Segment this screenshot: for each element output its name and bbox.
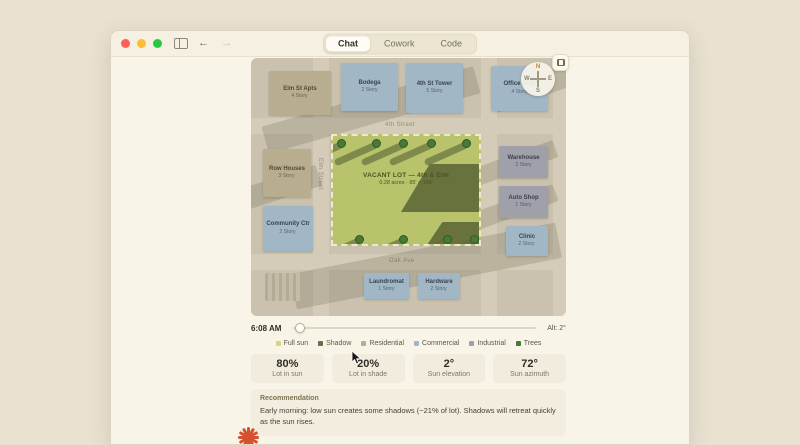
building-floors: 2 Story bbox=[431, 287, 447, 293]
sun-study-map[interactable]: 4th Street Elm Street Oak Ave Elm St Apt… bbox=[251, 58, 566, 316]
legend-item-shadow: Shadow bbox=[318, 340, 351, 347]
street-label-4th: 4th Street bbox=[385, 122, 415, 128]
tree-icon bbox=[462, 139, 471, 148]
building-floors: 2 Story bbox=[280, 229, 296, 235]
legend-label: Shadow bbox=[326, 340, 351, 347]
building-clinic: Clinic 2 Story bbox=[506, 226, 548, 256]
legend-swatch bbox=[469, 341, 474, 346]
building-hardware: Hardware 2 Story bbox=[418, 273, 460, 299]
recommendation-heading: Recommendation bbox=[260, 395, 557, 402]
building-name: Bodega bbox=[358, 80, 380, 88]
building-floors: 1 Story bbox=[515, 203, 531, 209]
legend-item-trees: Trees bbox=[516, 340, 542, 347]
stat-value: 20% bbox=[334, 358, 403, 370]
lot-label: VACANT LOT — 4th & Elm 0.28 acres · 85' … bbox=[333, 172, 479, 186]
zoom-window-button[interactable] bbox=[153, 39, 162, 48]
forward-button[interactable]: → bbox=[221, 38, 232, 49]
legend-label: Residential bbox=[369, 340, 404, 347]
building-floors: 4 Story bbox=[292, 94, 308, 100]
time-label: 6:08 AM bbox=[251, 324, 293, 333]
tab-chat[interactable]: Chat bbox=[326, 36, 370, 51]
lot-title: VACANT LOT — 4th & Elm bbox=[333, 172, 479, 179]
slider-knob[interactable] bbox=[295, 323, 305, 333]
traffic-lights bbox=[121, 39, 162, 48]
stat-label: Sun elevation bbox=[415, 371, 484, 378]
legend-item-commercial: Commercial bbox=[414, 340, 459, 347]
legend-label: Full sun bbox=[284, 340, 309, 347]
building-name: Auto Shop bbox=[508, 195, 538, 203]
stat-value: 72° bbox=[495, 358, 564, 370]
sunburst-logo bbox=[237, 426, 259, 445]
stat-label: Lot in sun bbox=[253, 371, 322, 378]
tree-icon bbox=[399, 139, 408, 148]
building-name: Laundromat bbox=[369, 279, 404, 287]
building-name: Clinic bbox=[519, 234, 535, 242]
building-name: Warehouse bbox=[507, 155, 539, 163]
stat-lot-in-sun[interactable]: 80% Lot in sun bbox=[251, 354, 324, 383]
building-name: Elm St Apts bbox=[283, 86, 316, 94]
compass-east: E bbox=[548, 76, 552, 82]
legend-swatch bbox=[318, 341, 323, 346]
tree-icon bbox=[399, 235, 408, 244]
stat-lot-in-shade[interactable]: 20% Lot in shade bbox=[332, 354, 405, 383]
stat-sun-azimuth[interactable]: 72° Sun azimuth bbox=[493, 354, 566, 383]
stat-sun-elevation[interactable]: 2° Sun elevation bbox=[413, 354, 486, 383]
lot-subtitle: 0.28 acres · 85' × 145' bbox=[340, 180, 471, 185]
compass-west: W bbox=[524, 76, 530, 82]
stat-label: Lot in shade bbox=[334, 371, 403, 378]
stat-label: Sun azimuth bbox=[495, 371, 564, 378]
expand-map-button[interactable] bbox=[552, 54, 569, 71]
recommendation-text: Early morning: low sun creates some shad… bbox=[260, 405, 557, 428]
stat-value: 2° bbox=[415, 358, 484, 370]
building-name: 4th St Tower bbox=[417, 81, 453, 89]
compass-axis bbox=[537, 71, 538, 87]
legend-swatch bbox=[276, 341, 281, 346]
legend-swatch bbox=[516, 341, 521, 346]
building-bodega: Bodega 2 Story bbox=[341, 63, 398, 111]
compass-rose: N E S W bbox=[521, 62, 555, 96]
building-auto-shop: Auto Shop 1 Story bbox=[499, 186, 548, 218]
building-name: Row Houses bbox=[269, 166, 305, 174]
tree-icon bbox=[470, 235, 479, 244]
building-floors: 2 Story bbox=[361, 88, 377, 94]
legend-swatch bbox=[361, 341, 366, 346]
tree-icon bbox=[337, 139, 346, 148]
tree-icon bbox=[443, 235, 452, 244]
parking-lot bbox=[265, 273, 303, 301]
compass-north: N bbox=[536, 64, 540, 70]
street-far-right bbox=[553, 58, 566, 316]
building-warehouse: Warehouse 2 Story bbox=[499, 146, 548, 178]
minimize-window-button[interactable] bbox=[137, 39, 146, 48]
building-elm-st-apts: Elm St Apts 4 Story bbox=[269, 71, 331, 115]
browser-titlebar: ← → Chat Cowork Code bbox=[111, 31, 689, 57]
sun-altitude-label: Alt: 2° bbox=[536, 325, 566, 332]
tab-code[interactable]: Code bbox=[429, 36, 475, 51]
browser-window: ← → Chat Cowork Code 4th Street Elm Stre… bbox=[110, 30, 690, 445]
slider-track[interactable] bbox=[293, 327, 536, 329]
tree-icon bbox=[427, 139, 436, 148]
copy-icon bbox=[558, 59, 565, 66]
building-floors: 5 Story bbox=[426, 89, 442, 95]
building-name: Hardware bbox=[425, 279, 452, 287]
tab-cowork[interactable]: Cowork bbox=[372, 36, 427, 51]
legend-item-full-sun: Full sun bbox=[276, 340, 309, 347]
tree-icon bbox=[355, 235, 364, 244]
building-4th-st-tower: 4th St Tower 5 Story bbox=[406, 63, 463, 113]
sidebar-toggle-icon[interactable] bbox=[174, 38, 188, 49]
stats-row: 80% Lot in sun 20% Lot in shade 2° Sun e… bbox=[251, 354, 566, 383]
building-community-ctr: Community Ctr 2 Story bbox=[263, 206, 313, 251]
back-button[interactable]: ← bbox=[198, 38, 209, 49]
compass-south: S bbox=[536, 88, 540, 94]
building-floors: 3 Story bbox=[279, 174, 295, 180]
tree-icon bbox=[372, 139, 381, 148]
content-column: 4th Street Elm Street Oak Ave Elm St Apt… bbox=[251, 58, 566, 436]
building-floors: 2 Story bbox=[519, 242, 535, 248]
mode-tab-group: Chat Cowork Code bbox=[323, 33, 477, 54]
legend-item-residential: Residential bbox=[361, 340, 404, 347]
stat-value: 80% bbox=[253, 358, 322, 370]
legend-label: Commercial bbox=[422, 340, 459, 347]
close-window-button[interactable] bbox=[121, 39, 130, 48]
screen: ← → Chat Cowork Code 4th Street Elm Stre… bbox=[0, 0, 800, 445]
legend-item-industrial: Industrial bbox=[469, 340, 505, 347]
legend-label: Industrial bbox=[477, 340, 505, 347]
legend-swatch bbox=[414, 341, 419, 346]
recommendation-card: Recommendation Early morning: low sun cr… bbox=[251, 389, 566, 436]
mouse-cursor bbox=[351, 350, 362, 365]
building-laundromat: Laundromat 1 Story bbox=[364, 273, 409, 299]
time-slider[interactable] bbox=[293, 323, 536, 333]
legend-label: Trees bbox=[524, 340, 542, 347]
building-floors: 1 Story bbox=[378, 287, 394, 293]
building-floors: 2 Story bbox=[515, 163, 531, 169]
vacant-lot[interactable]: VACANT LOT — 4th & Elm 0.28 acres · 85' … bbox=[331, 134, 481, 246]
building-row-houses: Row Houses 3 Story bbox=[263, 149, 311, 197]
map-legend: Full sun Shadow Residential Commercial I… bbox=[251, 340, 566, 347]
building-name: Community Ctr bbox=[266, 221, 309, 229]
time-slider-row: 6:08 AM Alt: 2° bbox=[251, 321, 566, 335]
